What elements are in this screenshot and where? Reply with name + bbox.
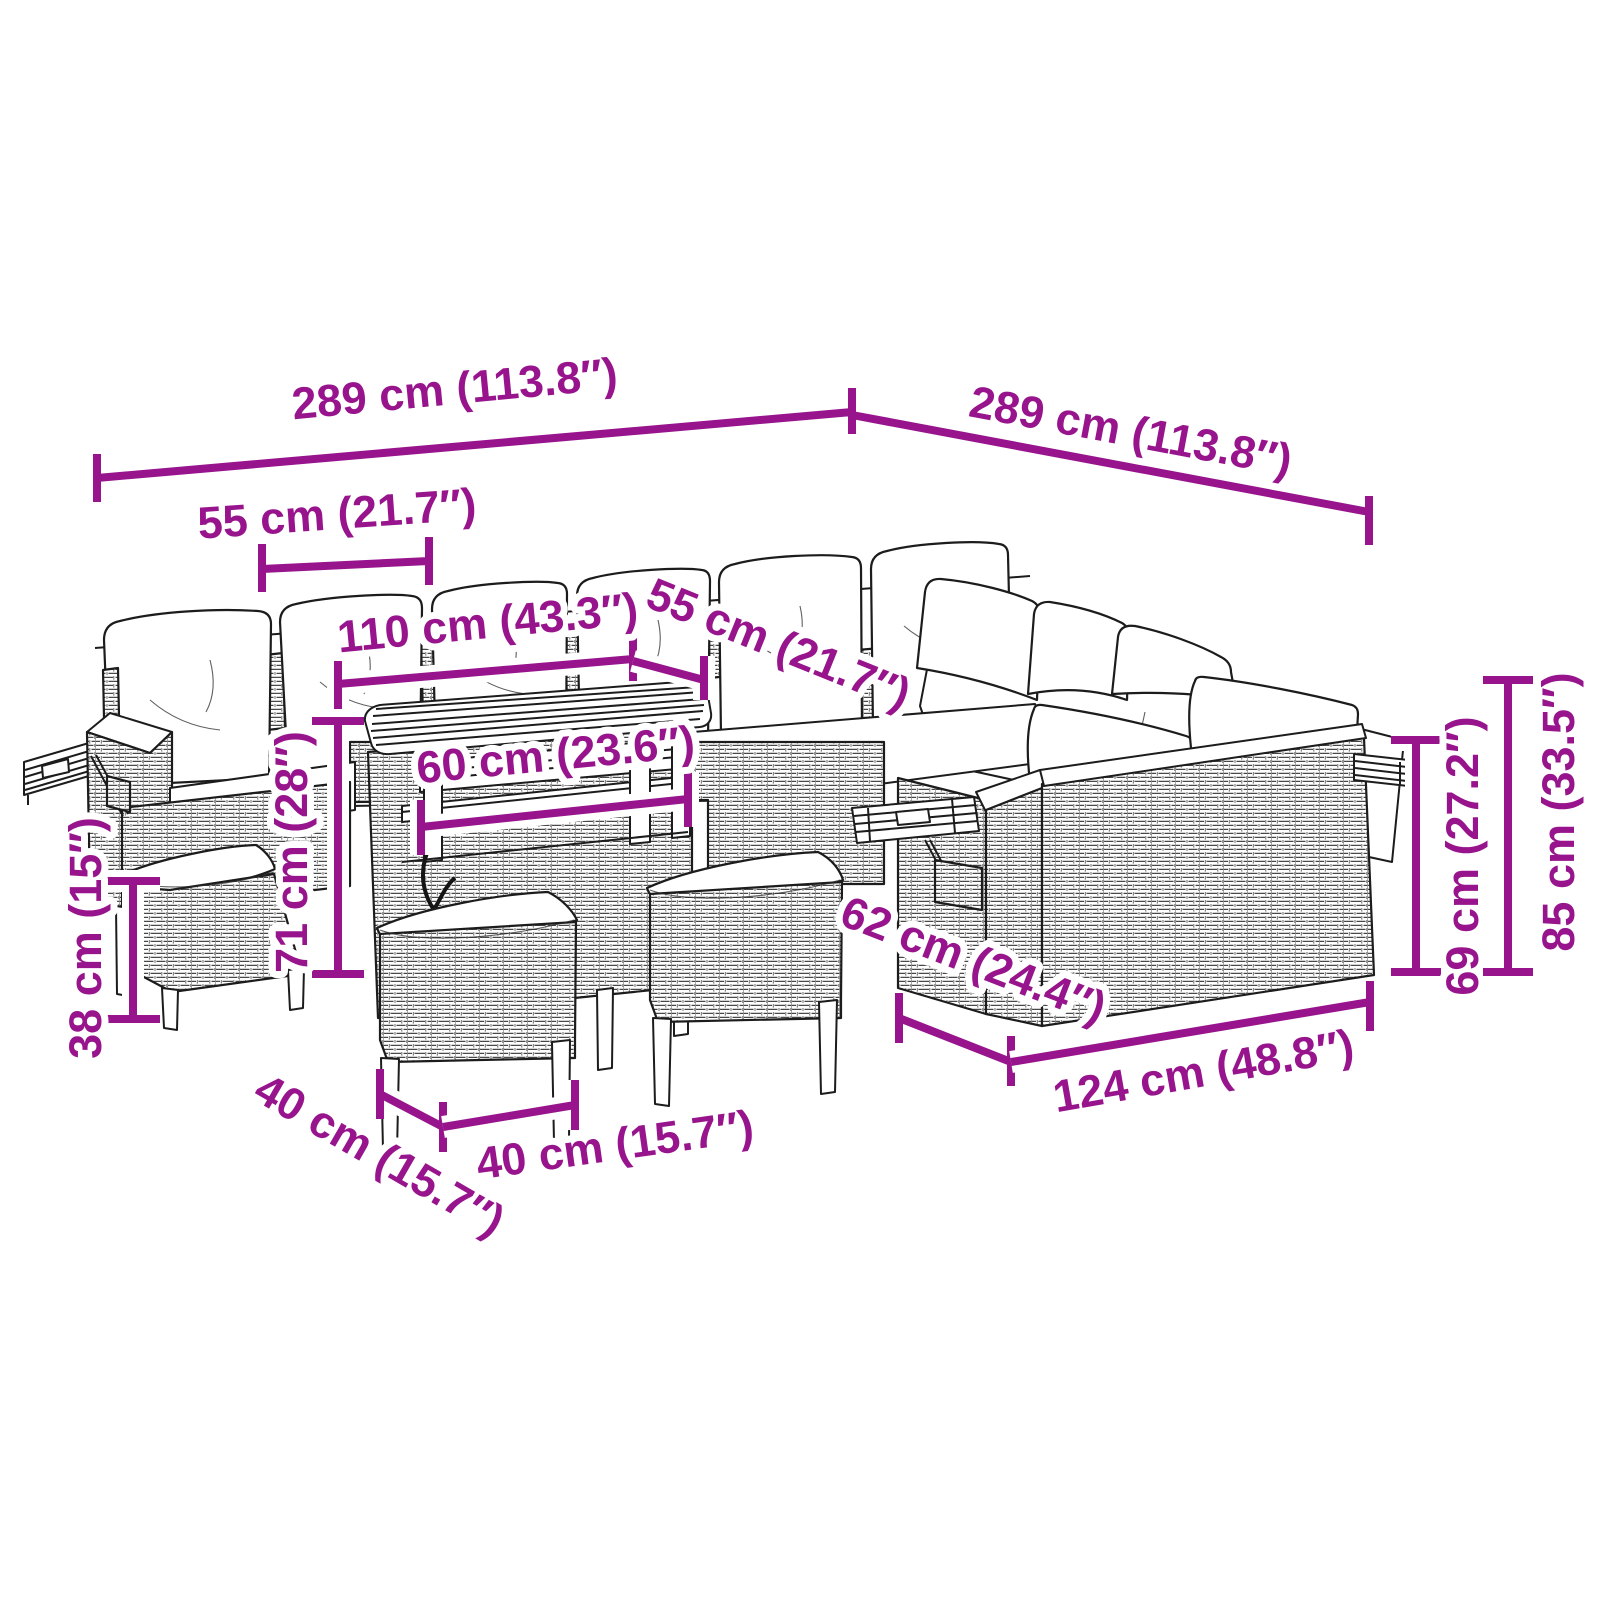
svg-text:85 cm (33.5″): 85 cm (33.5″)	[1533, 672, 1584, 951]
svg-text:38 cm (15″): 38 cm (15″)	[60, 817, 111, 1059]
svg-text:289 cm (113.8″): 289 cm (113.8″)	[289, 348, 619, 430]
svg-text:55 cm (21.7″): 55 cm (21.7″)	[196, 478, 478, 548]
svg-text:71 cm (28″): 71 cm (28″)	[266, 731, 317, 973]
svg-text:69 cm (27.2″): 69 cm (27.2″)	[1437, 716, 1488, 995]
